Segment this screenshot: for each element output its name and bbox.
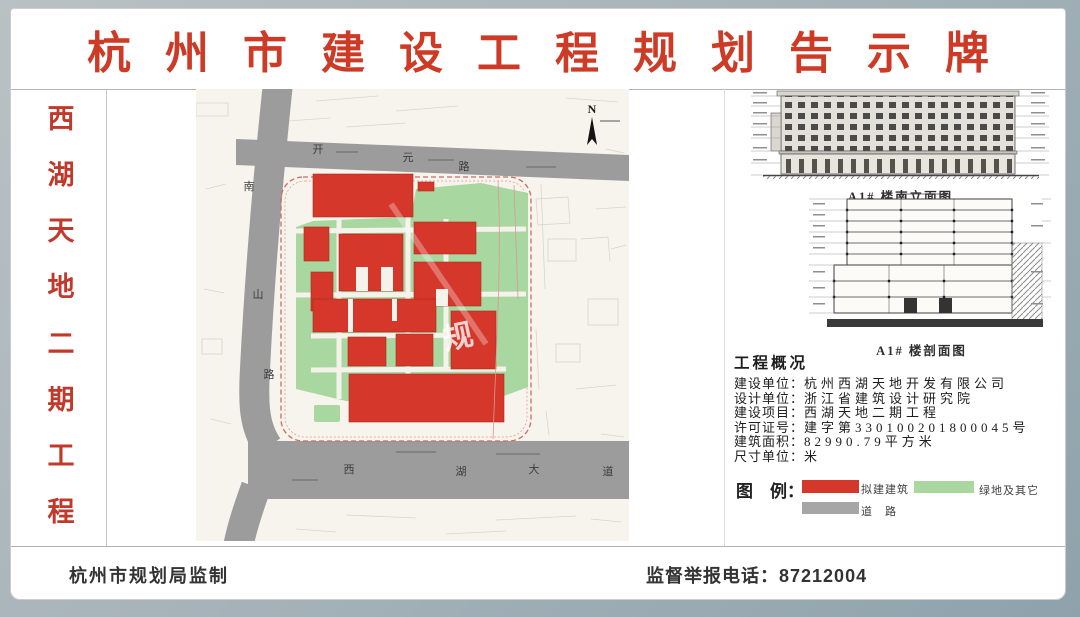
overview-label: 尺寸单位：	[734, 450, 804, 465]
panel-divider	[724, 89, 725, 546]
road-label-char: 路	[459, 160, 470, 173]
section-drawing-block: A1# 楼剖面图	[789, 193, 1054, 359]
project-name-sidebar: 西 湖 天 地 二 期 工 程	[11, 89, 107, 546]
map-legend: 图 例： 拟建建筑 绿地及其它 道 路	[736, 475, 1071, 535]
building	[349, 374, 504, 422]
section-lower	[834, 265, 1012, 313]
overview-label: 建设单位：	[734, 377, 804, 392]
project-overview: 工程概况 建设单位： 杭州西湖天地开发有限公司 设计单位： 浙江省建筑设计研究院…	[734, 351, 1069, 465]
overview-label: 设计单位：	[734, 392, 804, 407]
section-drawing	[789, 193, 1054, 333]
roof-bulkhead	[901, 194, 949, 199]
overview-label: 建筑面积：	[734, 435, 804, 450]
overview-row: 设计单位： 浙江省建筑设计研究院	[734, 392, 1069, 407]
project-name-vertical: 西 湖 天 地 二 期 工 程	[41, 97, 81, 529]
ground-hatch-right	[1012, 243, 1042, 321]
road-xihu-avenue	[248, 441, 629, 499]
facade-band	[779, 151, 1017, 154]
facade-left-wing	[771, 113, 781, 151]
legend-swatch-road	[802, 502, 859, 514]
road-label-char: 路	[264, 368, 275, 381]
facade-cornice	[777, 91, 1019, 96]
overview-value: 米	[804, 450, 821, 465]
north-label: N	[588, 102, 597, 116]
site-plan-svg: 开 元 路 南 山 路 西 湖 大 道 N 规	[196, 89, 629, 541]
overview-value: 浙江省建筑设计研究院	[804, 392, 974, 407]
notice-board-page: 杭州市建设工程规划告示牌 西 湖 天 地 二 期 工 程	[10, 8, 1066, 600]
hotline-text: 监督举报电话：87212004	[646, 562, 867, 588]
footer-band: 杭州市规划局监制 监督举报电话：87212004	[11, 546, 1065, 602]
project-char: 西	[48, 97, 75, 136]
overview-row: 许可证号： 建字第330100201800045号	[734, 421, 1069, 436]
overview-heading: 工程概况	[734, 351, 1069, 373]
building	[339, 234, 403, 291]
building	[418, 182, 434, 191]
title-band: 杭州市建设工程规划告示牌	[11, 9, 1065, 90]
building	[313, 299, 436, 332]
issuer-text: 杭州市规划局监制	[69, 562, 229, 588]
legend-swatch-building	[802, 480, 859, 493]
hotline-label: 监督举报电话：	[646, 566, 779, 586]
ground-slab	[827, 319, 1043, 327]
road-label-char: 道	[603, 464, 614, 478]
project-char: 地	[48, 265, 75, 304]
page-title: 杭州市建设工程规划告示牌	[53, 17, 1023, 81]
ground-hatch	[763, 176, 1039, 179]
road-label-char: 南	[244, 180, 255, 193]
overview-label: 许可证号：	[734, 421, 804, 436]
overview-value: 建字第330100201800045号	[804, 421, 1030, 436]
road-label-char: 大	[529, 462, 540, 476]
road-label-char: 西	[344, 464, 355, 476]
legend-label-building: 拟建建筑	[861, 481, 909, 497]
hotline-number: 87212004	[779, 566, 867, 586]
building	[396, 334, 433, 366]
road-label-char: 湖	[456, 465, 467, 478]
elevation-drawing	[743, 89, 1058, 179]
project-char: 期	[48, 378, 75, 417]
legend-label-green: 绿地及其它	[979, 482, 1039, 498]
building	[304, 227, 329, 261]
project-char: 湖	[48, 153, 75, 192]
road-label-char: 开	[313, 144, 324, 156]
legend-heading: 图 例：	[736, 477, 804, 502]
project-char: 工	[48, 434, 75, 473]
facade-windows	[781, 96, 1015, 151]
notice-board-photo: { "board": { "title": "杭州市建设工程规划告示牌" }, …	[0, 0, 1080, 617]
legend-swatch-green	[914, 481, 974, 493]
project-char: 程	[48, 490, 75, 529]
site-plan-map: 开 元 路 南 山 路 西 湖 大 道 N 规	[196, 89, 629, 541]
overview-value: 西湖天地二期工程	[804, 406, 940, 421]
overview-value: 杭州西湖天地开发有限公司	[804, 377, 1008, 392]
overview-row: 建筑面积： 82990.79平方米	[734, 435, 1069, 450]
overview-value: 82990.79平方米	[804, 435, 936, 450]
overview-row: 建设项目： 西湖天地二期工程	[734, 406, 1069, 421]
overview-row: 尺寸单位： 米	[734, 450, 1069, 465]
road-label-char: 山	[253, 288, 264, 301]
facade-arcade	[781, 154, 1015, 174]
overview-row: 建设单位： 杭州西湖天地开发有限公司	[734, 377, 1069, 392]
legend-label-road: 道 路	[861, 503, 897, 519]
overview-label: 建设项目：	[734, 406, 804, 421]
project-char: 天	[48, 209, 75, 248]
project-char: 二	[48, 322, 75, 361]
road-label-char: 元	[403, 152, 414, 164]
elevation-drawing-block: A1# 楼南立面图	[743, 89, 1058, 205]
building	[348, 337, 386, 366]
